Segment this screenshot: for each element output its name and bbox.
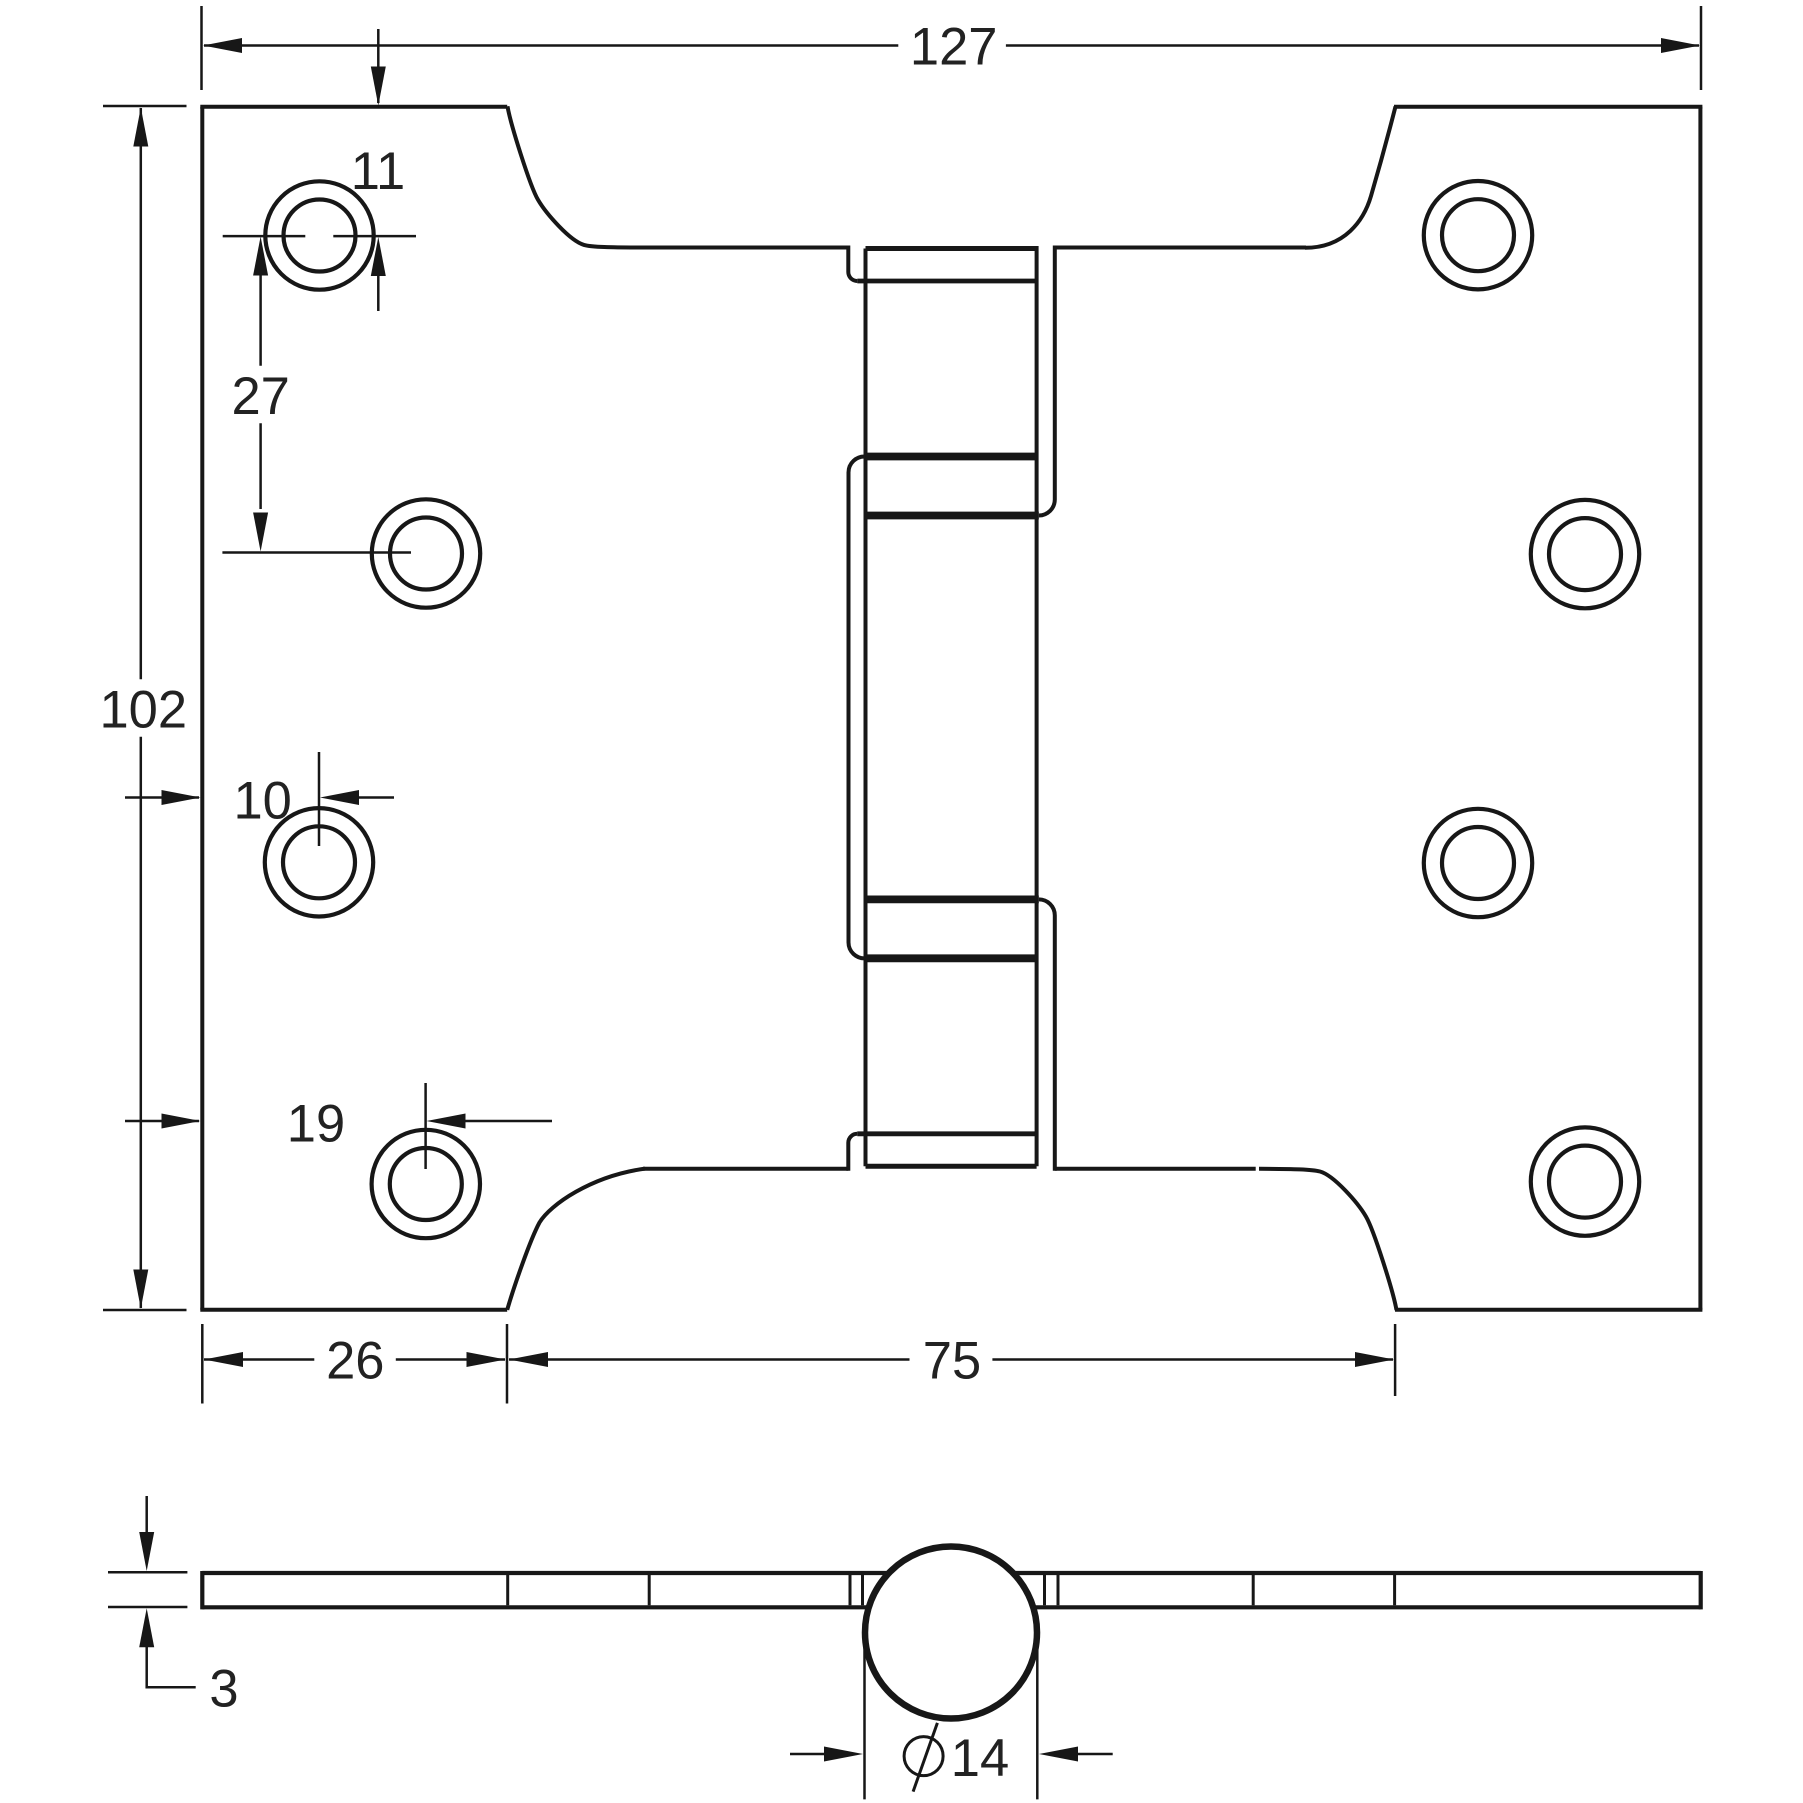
svg-text:127: 127 bbox=[910, 18, 998, 77]
svg-text:19: 19 bbox=[287, 1095, 345, 1154]
svg-text:75: 75 bbox=[923, 1332, 981, 1391]
svg-text:3: 3 bbox=[209, 1660, 238, 1719]
svg-text:27: 27 bbox=[231, 367, 289, 426]
svg-text:11: 11 bbox=[351, 142, 406, 201]
svg-text:14: 14 bbox=[951, 1729, 1009, 1788]
svg-text:26: 26 bbox=[326, 1331, 384, 1390]
svg-text:102: 102 bbox=[99, 681, 187, 740]
svg-text:10: 10 bbox=[233, 772, 291, 831]
